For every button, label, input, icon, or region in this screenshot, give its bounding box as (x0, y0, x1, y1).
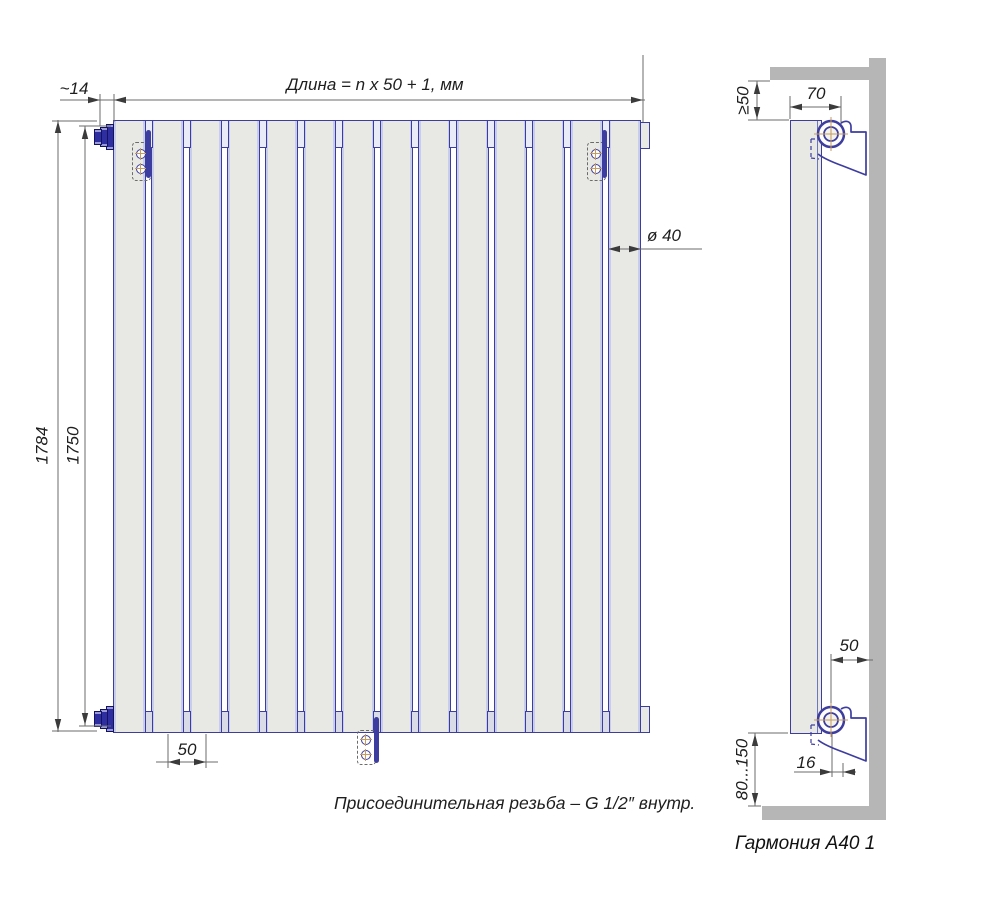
technical-drawing-canvas: Длина = n x 50 + 1, мм ~14 1784 1750 ø 4… (0, 0, 1000, 900)
tube-gap (336, 120, 341, 733)
bottom-collector-segment (145, 711, 153, 733)
dimension-tube-height: 1750 (65, 416, 82, 476)
radiator-tube (608, 120, 641, 733)
tube-gap (146, 120, 151, 733)
wall-section (869, 58, 886, 820)
dimension-length-formula: Длина = n x 50 + 1, мм (250, 76, 500, 93)
thread-note: Присоединительная резьба – G 1/2″ внутр. (334, 795, 674, 813)
tube-gap (489, 120, 494, 733)
radiator-tube (113, 120, 146, 733)
radiator-tube (456, 120, 489, 733)
bottom-collector-segment (563, 711, 571, 733)
top-collector-segment (487, 120, 495, 148)
dimension-min-top-clearance: ≥50 (735, 71, 752, 131)
bottom-collector-segment (602, 711, 610, 733)
radiator-tube (380, 120, 413, 733)
right-end-cap-top (640, 122, 650, 149)
screw-icon (591, 149, 601, 159)
tube-gap (527, 120, 532, 733)
bracket-hook (374, 717, 379, 763)
radiator-tube (418, 120, 451, 733)
screw-icon (136, 149, 146, 159)
bracket-hook (602, 130, 607, 178)
radiator-tube (341, 120, 374, 733)
tube-gap (565, 120, 570, 733)
radiator-tube (494, 120, 527, 733)
dimension-tube-pitch: 50 (167, 741, 207, 758)
fitting-cap (94, 711, 102, 727)
radiator-front-view (113, 120, 641, 733)
radiator-tube (532, 120, 565, 733)
bottom-collector-segment (335, 711, 343, 733)
ceiling-section (770, 67, 869, 80)
tube-gap (603, 120, 608, 733)
top-collector-segment (525, 120, 533, 148)
dimension-side-offset: ~14 (55, 80, 93, 97)
radiator-tube (227, 120, 260, 733)
top-collector-segment (373, 120, 381, 148)
tube-gap (413, 120, 418, 733)
top-collector-segment (411, 120, 419, 148)
tube-gap (375, 120, 380, 733)
fitting-cap (94, 129, 102, 145)
top-collector-segment (449, 120, 457, 148)
radiator-tube (570, 120, 603, 733)
dimension-floor-clearance: 80...150 (734, 725, 751, 815)
dimension-axis-offset: 16 (785, 754, 827, 771)
bottom-collector-segment (259, 711, 267, 733)
bottom-collector-segment (221, 711, 229, 733)
top-collector-segment (335, 120, 343, 148)
dimension-bottom-wall-offset: 50 (828, 637, 870, 654)
bracket-hook (146, 130, 151, 178)
top-collector-segment (563, 120, 571, 148)
top-collector-segment (221, 120, 229, 148)
radiator-tube (303, 120, 336, 733)
bottom-collector-segment (183, 711, 191, 733)
bottom-collector-segment (487, 711, 495, 733)
dimension-top-wall-offset: 70 (795, 85, 837, 102)
top-inlet-fitting (95, 123, 114, 150)
bottom-collector-segment (449, 711, 457, 733)
model-title: Гармония А40 1 (735, 834, 915, 853)
dimension-tube-diameter: ø 40 (647, 227, 717, 244)
bottom-outlet-fitting (95, 705, 114, 732)
screw-icon (361, 750, 371, 760)
dimension-total-height: 1784 (34, 416, 51, 476)
bottom-collector-segment (525, 711, 533, 733)
floor-section (762, 806, 886, 820)
tube-gap (184, 120, 189, 733)
screw-icon (361, 735, 371, 745)
tube-gap (260, 120, 265, 733)
radiator-tube (265, 120, 298, 733)
top-collector-segment (259, 120, 267, 148)
right-end-cap-bottom (640, 706, 650, 733)
tube-gap (298, 120, 303, 733)
screw-icon (591, 164, 601, 174)
top-collector-segment (183, 120, 191, 148)
bottom-collector-segment (297, 711, 305, 733)
radiator-side-view (790, 120, 822, 734)
radiator-tube (189, 120, 222, 733)
tube-gap (222, 120, 227, 733)
tube-wall-line (817, 121, 819, 733)
bottom-collector-segment (411, 711, 419, 733)
top-collector-segment (297, 120, 305, 148)
screw-icon (136, 164, 146, 174)
tube-gap (451, 120, 456, 733)
radiator-tube (151, 120, 184, 733)
